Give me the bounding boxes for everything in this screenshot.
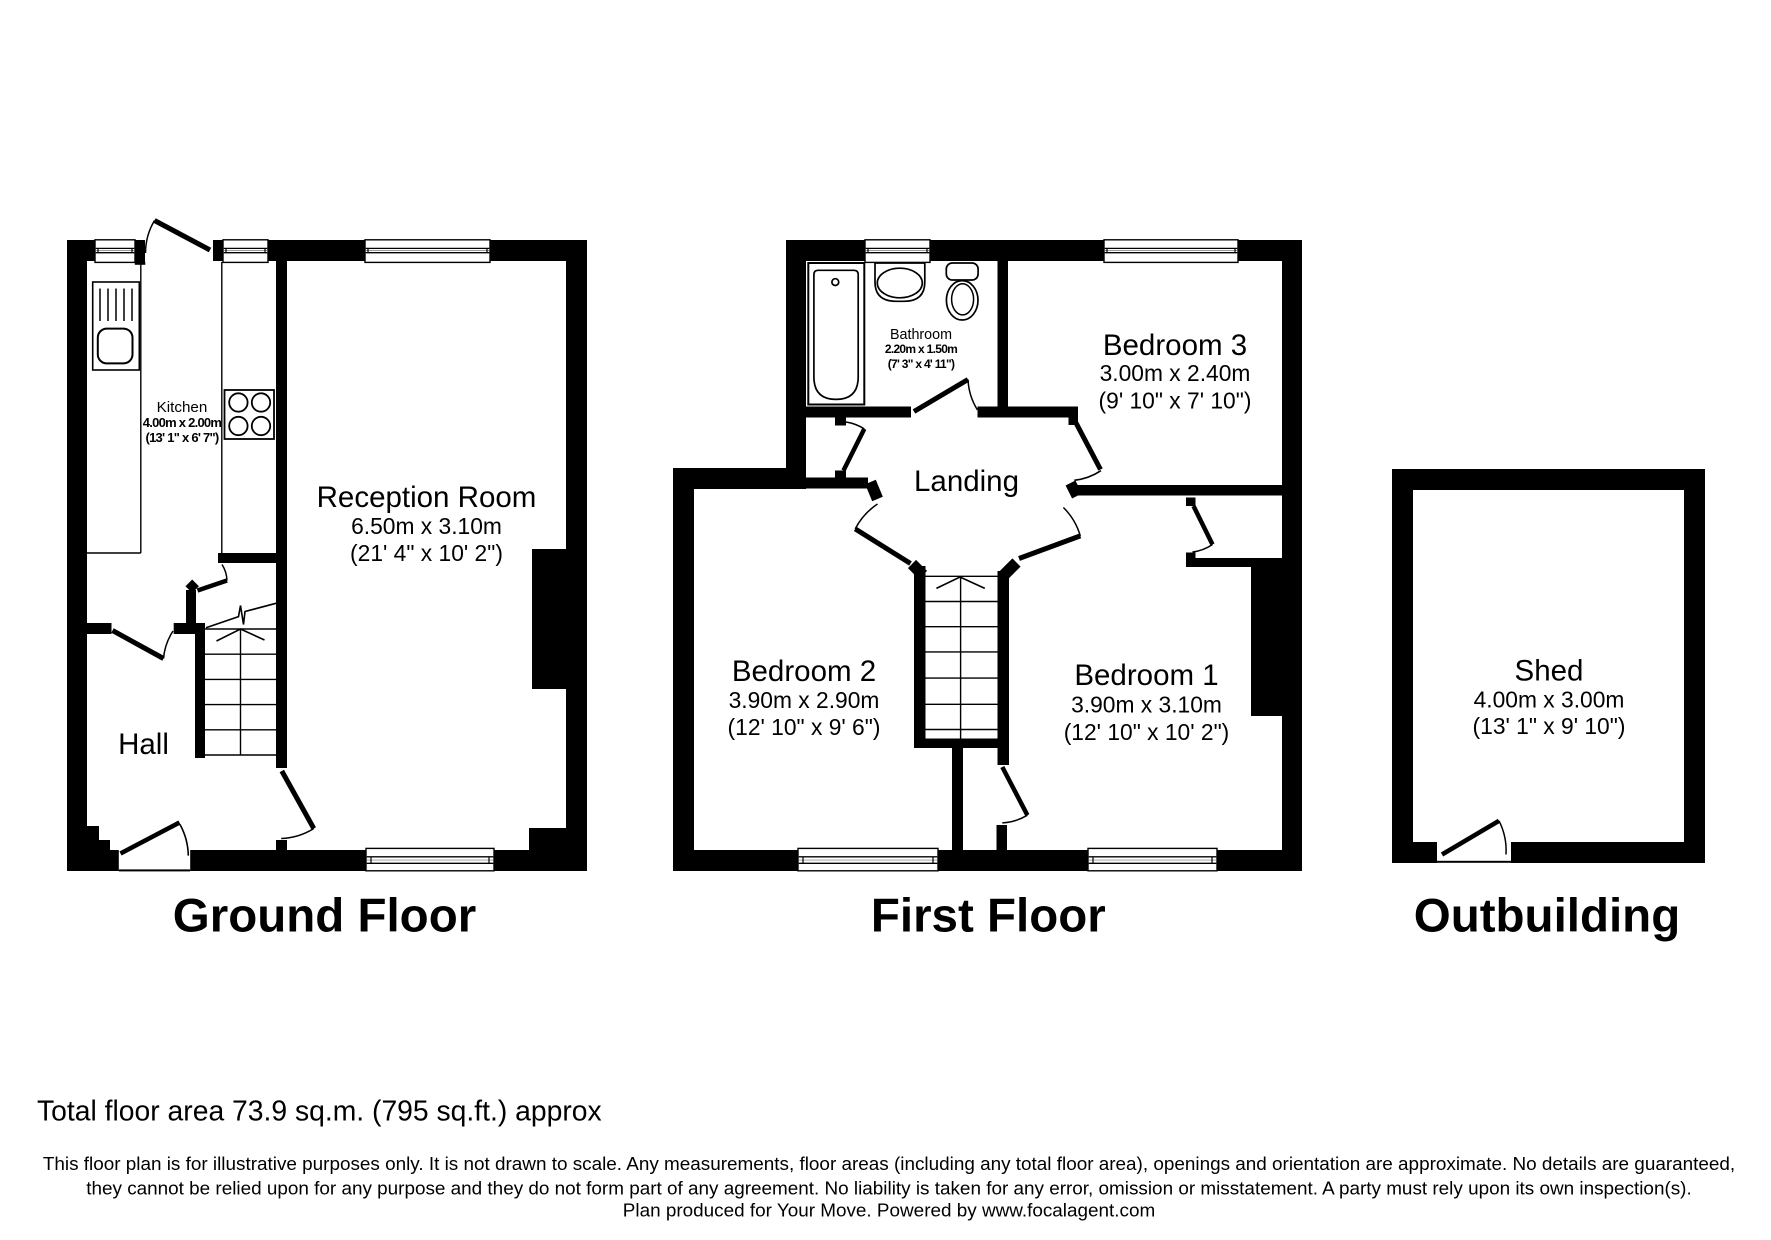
svg-text:Total floor area 73.9 sq.m. (7: Total floor area 73.9 sq.m. (795 sq.ft.)… (37, 1095, 602, 1127)
svg-text:Outbuilding: Outbuilding (1414, 889, 1680, 942)
svg-text:3.00m x 2.40m: 3.00m x 2.40m (1100, 360, 1251, 386)
svg-text:Plan produced for Your Move. P: Plan produced for Your Move. Powered by … (623, 1201, 1155, 1222)
svg-text:Bedroom 1: Bedroom 1 (1074, 659, 1218, 692)
svg-text:Bedroom 3: Bedroom 3 (1103, 329, 1247, 362)
svg-text:Landing: Landing (914, 465, 1019, 498)
svg-text:Hall: Hall (118, 728, 169, 761)
svg-text:3.90m x 3.10m: 3.90m x 3.10m (1071, 692, 1222, 718)
svg-text:Bathroom: Bathroom (890, 327, 952, 343)
svg-text:(13' 1" x 6' 7"): (13' 1" x 6' 7") (146, 430, 219, 445)
svg-text:Ground Floor: Ground Floor (173, 889, 476, 942)
svg-text:6.50m x 3.10m: 6.50m x 3.10m (351, 513, 502, 539)
svg-text:(21' 4" x 10' 2"): (21' 4" x 10' 2") (350, 540, 503, 566)
svg-text:3.90m x 2.90m: 3.90m x 2.90m (729, 687, 880, 713)
svg-text:4.00m x 3.00m: 4.00m x 3.00m (1474, 687, 1625, 713)
svg-text:they cannot be relied upon for: they cannot be relied upon for any purpo… (86, 1179, 1691, 1200)
svg-text:2.20m x 1.50m: 2.20m x 1.50m (885, 342, 957, 356)
svg-text:(7' 3" x 4' 11"): (7' 3" x 4' 11") (888, 357, 955, 371)
svg-text:First Floor: First Floor (871, 889, 1106, 942)
svg-text:(9' 10" x 7' 10"): (9' 10" x 7' 10") (1099, 388, 1252, 414)
svg-text:(13' 1" x 9' 10"): (13' 1" x 9' 10") (1473, 713, 1626, 739)
svg-text:(12' 10" x 9' 6"): (12' 10" x 9' 6") (728, 714, 881, 740)
svg-text:Shed: Shed (1515, 655, 1584, 688)
svg-text:(12' 10" x 10' 2"): (12' 10" x 10' 2") (1064, 719, 1230, 745)
svg-text:Kitchen: Kitchen (157, 399, 208, 416)
svg-text:This floor plan is for illustr: This floor plan is for illustrative purp… (43, 1154, 1735, 1175)
svg-text:Reception Room: Reception Room (317, 481, 537, 514)
svg-text:Bedroom 2: Bedroom 2 (732, 655, 876, 688)
svg-text:4.00m x 2.00m: 4.00m x 2.00m (143, 415, 222, 430)
